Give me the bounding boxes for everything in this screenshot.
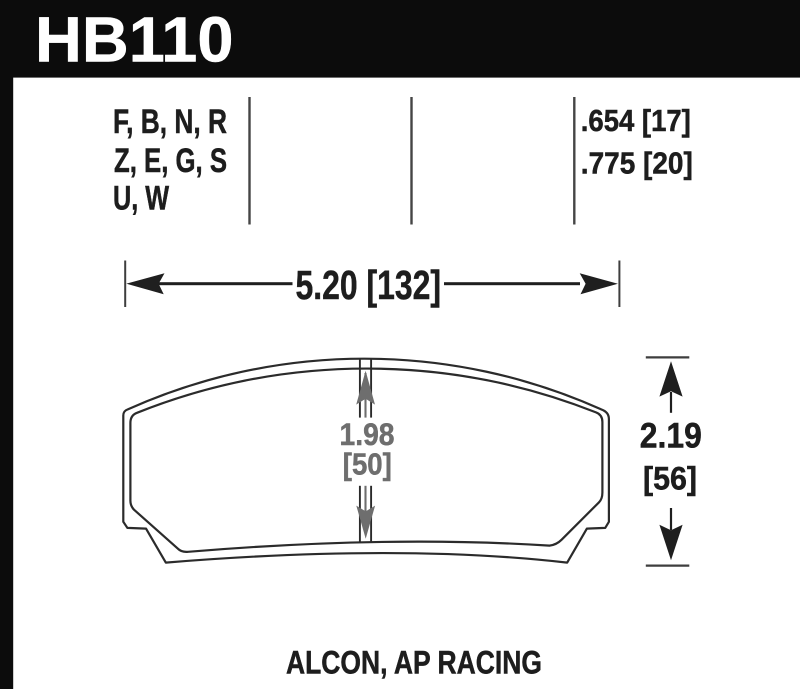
svg-text:F, B, N, R: F, B, N, R bbox=[113, 103, 227, 141]
svg-text:U, W: U, W bbox=[113, 179, 169, 217]
svg-text:ALCON, AP RACING: ALCON, AP RACING bbox=[286, 644, 542, 680]
svg-text:.775 [20]: .775 [20] bbox=[581, 147, 693, 181]
svg-text:Z, E, G, S: Z, E, G, S bbox=[114, 142, 227, 180]
svg-text:2.19: 2.19 bbox=[640, 417, 702, 456]
svg-text:5.20 [132]: 5.20 [132] bbox=[296, 262, 442, 308]
svg-text:HB110: HB110 bbox=[35, 3, 234, 75]
svg-text:[50]: [50] bbox=[343, 448, 392, 482]
svg-text:[56]: [56] bbox=[643, 461, 697, 497]
svg-text:.654 [17]: .654 [17] bbox=[581, 104, 691, 138]
